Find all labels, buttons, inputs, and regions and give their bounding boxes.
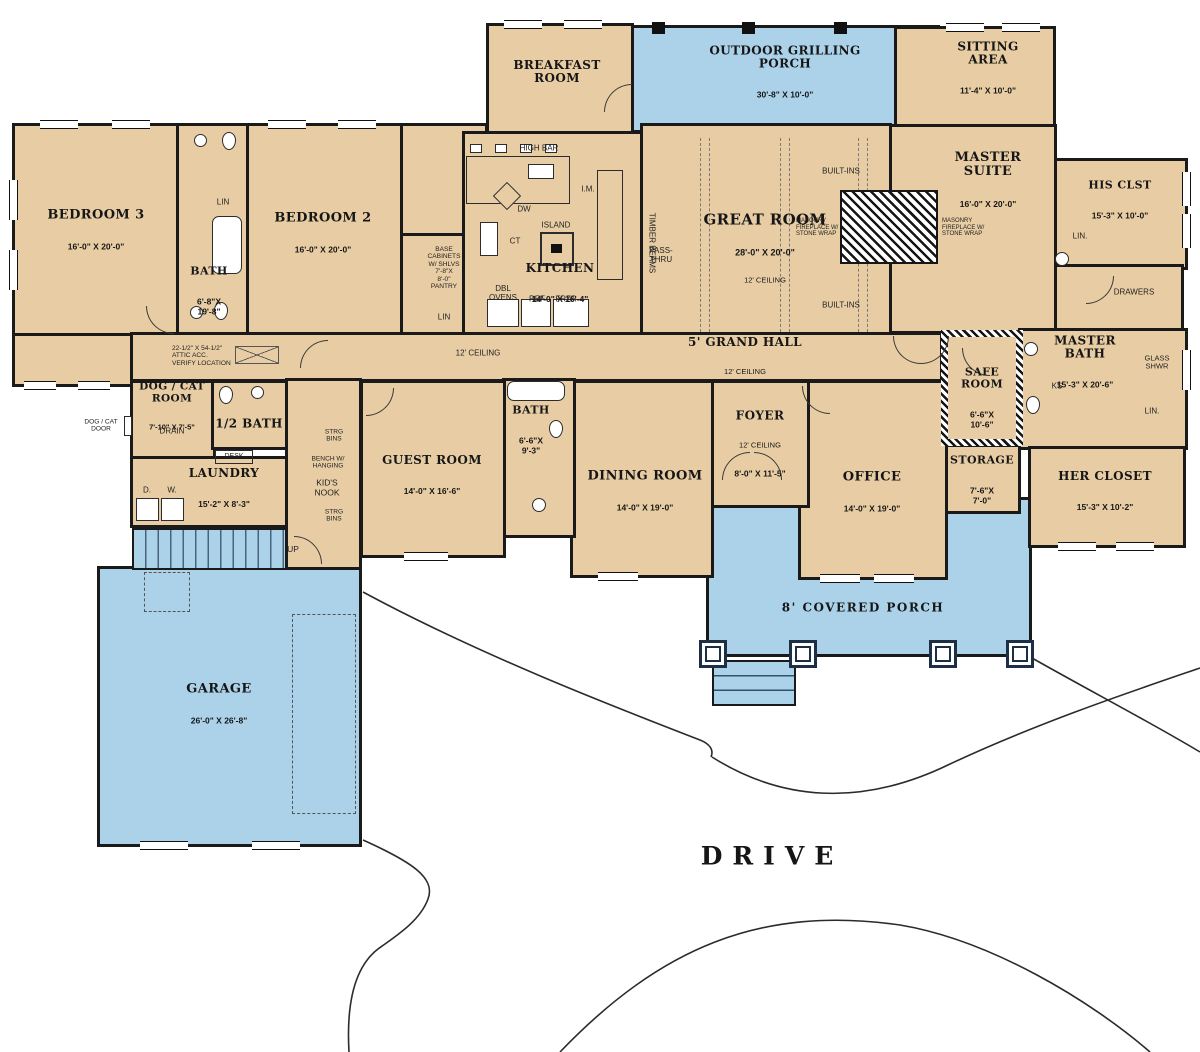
window bbox=[564, 20, 602, 29]
room-name: GUEST ROOM bbox=[382, 454, 482, 467]
dog-cat-room-label: DOG / CAT ROOM 7'-10" X 7'-5" bbox=[139, 364, 205, 451]
drain-note: DRAIN bbox=[160, 428, 185, 437]
dryer-icon bbox=[161, 498, 184, 521]
room-name: SAFE ROOM bbox=[961, 366, 1003, 390]
room-name: DINING ROOM bbox=[587, 469, 702, 483]
dining-room-label: DINING ROOM 14'-0" X 19'-0" bbox=[587, 451, 702, 530]
room-name: GARAGE bbox=[186, 682, 252, 696]
room-name: BATH bbox=[190, 265, 227, 277]
dogcat-door-note: DOG / CAT DOOR bbox=[84, 419, 117, 434]
island-note: ISLAND bbox=[542, 222, 571, 231]
porch-column-icon bbox=[929, 640, 957, 668]
grilling-porch-label: OUTDOOR GRILLING PORCH 30'-8" X 10'-0" bbox=[709, 26, 860, 117]
built-ins-note: BUILT-INS bbox=[822, 168, 860, 177]
window bbox=[24, 381, 56, 390]
washer-icon bbox=[136, 498, 159, 521]
window bbox=[404, 552, 448, 561]
fireplace-icon bbox=[840, 190, 938, 264]
up-note: UP bbox=[287, 545, 299, 555]
window bbox=[1182, 214, 1191, 248]
room-name: OUTDOOR GRILLING PORCH bbox=[709, 44, 860, 70]
room-dims: 15'-3" X 20'-6" bbox=[1054, 380, 1116, 390]
room-name: BEDROOM 2 bbox=[274, 211, 371, 225]
room-dims: 15'-3" X 10'-0" bbox=[1088, 211, 1151, 221]
window bbox=[112, 120, 150, 129]
room-dims: 6'-6"X 10'-6" bbox=[961, 410, 1003, 430]
storage-label: STORAGE 7'-6"X 7'-0" bbox=[950, 436, 1014, 523]
masonry-fireplace-note: MASONRY FIREPLACE W/ STONE WRAP bbox=[942, 218, 984, 238]
dogcat-door-icon bbox=[124, 416, 132, 436]
bath-3-label: BATH 6'-8"X 19'-8" bbox=[190, 247, 227, 334]
window bbox=[252, 841, 300, 850]
drive-label: DRIVE bbox=[701, 824, 844, 888]
sink-icon bbox=[251, 386, 264, 399]
attic-note: 22-1/2" X 54-1/2" ATTIC ACC. VERIFY LOCA… bbox=[172, 345, 231, 367]
ice-maker-note: I.M. bbox=[581, 186, 594, 195]
timber-beams-note: TIMBER BEAMS bbox=[647, 213, 656, 273]
cooktop-icon bbox=[480, 222, 498, 256]
room-name: BEDROOM 3 bbox=[47, 208, 144, 222]
ice-maker-cabinet bbox=[597, 170, 623, 280]
room-dims: 14'-0" X 19'-0" bbox=[843, 504, 902, 514]
strg-bins-note: STRG BINS bbox=[325, 509, 343, 524]
room-note: 12' CEILING bbox=[703, 276, 826, 284]
room-dims: 11'-4" X 10'-0" bbox=[957, 86, 1018, 96]
room-name: BATH bbox=[512, 404, 549, 416]
room-name: MASTER BATH bbox=[1054, 334, 1116, 360]
sink-icon bbox=[194, 134, 207, 147]
breakfast-label: BREAKFAST ROOM bbox=[513, 41, 600, 103]
ks-note: KS bbox=[1052, 383, 1063, 392]
lin-note: LIN. bbox=[1073, 233, 1088, 242]
lin-note: LIN bbox=[217, 199, 229, 208]
bedroom-3-label: BEDROOM 3 16'-0" X 20'-0" bbox=[47, 190, 144, 269]
room-name: 1/2 BATH bbox=[215, 417, 283, 430]
master-suite-label: MASTER SUITE 16'-0" X 20'-0" bbox=[955, 133, 1022, 227]
window bbox=[1116, 542, 1154, 551]
double-ovens-icon bbox=[487, 299, 519, 327]
room-dims: 16'-0" X 20'-0" bbox=[274, 245, 371, 255]
room-name: HIS CLST bbox=[1088, 179, 1151, 191]
dw-note: DW bbox=[517, 206, 530, 215]
frzr-note: FRZR bbox=[555, 296, 576, 305]
his-closet-label: HIS CLST 15'-3" X 10'-0" bbox=[1088, 161, 1151, 238]
window bbox=[1182, 172, 1191, 206]
window bbox=[9, 250, 18, 290]
room-dims: 16'-0" X 20'-0" bbox=[47, 242, 144, 252]
room-note: 12' CEILING bbox=[734, 441, 785, 449]
room-name: KITCHEN bbox=[526, 262, 595, 275]
window bbox=[1058, 542, 1096, 551]
room-note: 12' CEILING bbox=[688, 368, 802, 376]
lin-note: LIN. bbox=[1145, 408, 1160, 417]
window bbox=[140, 841, 188, 850]
room-name: DRIVE bbox=[701, 842, 844, 870]
kitchen-label: KITCHEN 14'-0" X 16'-4" bbox=[526, 244, 595, 322]
window bbox=[504, 20, 542, 29]
ref-note: REF bbox=[529, 296, 545, 305]
ct-note: CT bbox=[510, 238, 521, 247]
window bbox=[40, 120, 78, 129]
sink-icon bbox=[532, 498, 546, 512]
her-closet-label: HER CLOSET 15'-3" X 10'-2" bbox=[1058, 452, 1152, 530]
room-dims: 8'-0" X 11'-5" bbox=[734, 469, 785, 479]
room-name: LAUNDRY bbox=[189, 467, 260, 480]
window bbox=[598, 572, 638, 581]
storage-shelves bbox=[144, 572, 190, 612]
kitchen-sink-icon bbox=[528, 164, 554, 179]
sitting-area-label: SITTING AREA 11'-4" X 10'-0" bbox=[957, 22, 1018, 113]
safe-room-label: SAFE ROOM 6'-6"X 10'-6" bbox=[961, 348, 1003, 447]
porch-column-icon bbox=[789, 640, 817, 668]
bar-stool-icon bbox=[495, 144, 507, 153]
foyer-label: FOYER 12' CEILING 8'-0" X 11'-5" bbox=[734, 391, 785, 496]
desk-note: DESK bbox=[224, 453, 243, 461]
room-dims: 16'-0" X 20'-0" bbox=[955, 199, 1022, 209]
room-name: SITTING AREA bbox=[957, 40, 1018, 66]
room-name: 8' COVERED PORCH bbox=[782, 601, 945, 614]
room-dims: 15'-3" X 10'-2" bbox=[1058, 502, 1152, 512]
dbl-ovens-note: DBL OVENS bbox=[489, 285, 517, 303]
strg-bins-note: STRG BINS bbox=[325, 429, 343, 444]
room-dims: 14'-0" X 16'-6" bbox=[382, 486, 482, 496]
half-bath-label: 1/2 BATH bbox=[215, 399, 283, 448]
drive-curve-bottom bbox=[560, 920, 1150, 1052]
room-name: HER CLOSET bbox=[1058, 470, 1152, 483]
attic-stair-icon bbox=[235, 346, 279, 364]
window bbox=[78, 381, 110, 390]
drive-curve-left-lower bbox=[348, 840, 429, 1052]
drive-curve-porch-right bbox=[1032, 658, 1200, 752]
bar-stool-icon bbox=[470, 144, 482, 153]
room-name: 5' GRAND HALL bbox=[688, 336, 802, 349]
lin-note: LIN bbox=[438, 314, 450, 323]
glass-shower-note: GLASS SHWR bbox=[1144, 355, 1169, 372]
room-name: FOYER bbox=[734, 409, 785, 422]
kids-nook-note: KID'S NOOK bbox=[314, 478, 339, 497]
window bbox=[338, 120, 376, 129]
room-name: OFFICE bbox=[843, 470, 902, 484]
room-dims: 6'-8"X 19'-8" bbox=[190, 297, 227, 317]
room-dims: 7'-6"X 7'-0" bbox=[950, 486, 1014, 506]
garage-door-outline bbox=[292, 614, 356, 814]
covered-porch-label: 8' COVERED PORCH bbox=[782, 583, 945, 632]
room-name: STORAGE bbox=[950, 454, 1014, 466]
room-dims: 15'-2" X 8'-3" bbox=[189, 499, 260, 509]
room-name: MASTER SUITE bbox=[955, 151, 1022, 180]
room-name: BREAKFAST ROOM bbox=[513, 59, 600, 85]
room-name: DOG / CAT ROOM bbox=[139, 382, 205, 405]
dryer-note: D. bbox=[143, 487, 151, 496]
window bbox=[874, 574, 914, 583]
room-dims: 14'-0" X 19'-0" bbox=[587, 503, 702, 513]
bench-note: BENCH W/ HANGING bbox=[312, 456, 345, 471]
high-bar-note: HIGH BAR bbox=[520, 145, 559, 154]
master-bath-label: MASTER BATH 15'-3" X 20'-6" bbox=[1054, 316, 1116, 407]
guest-room-label: GUEST ROOM 14'-0" X 16'-6" bbox=[382, 436, 482, 514]
porch-post-icon bbox=[652, 22, 665, 34]
great-room-label: GREAT ROOM 28'-0" X 20'-0" 12' CEILING bbox=[703, 193, 826, 302]
bedroom-2-label: BEDROOM 2 16'-0" X 20'-0" bbox=[274, 193, 371, 272]
window bbox=[268, 120, 306, 129]
built-ins-note: BUILT-INS bbox=[822, 302, 860, 311]
masonry-fireplace-note: MASONRY FIREPLACE W/ STONE WRAP bbox=[796, 218, 838, 238]
window bbox=[9, 180, 18, 220]
office-label: OFFICE 14'-0" X 19'-0" bbox=[843, 452, 902, 531]
washer-note: W. bbox=[167, 487, 176, 496]
porch-column-icon bbox=[1006, 640, 1034, 668]
sink-icon bbox=[1055, 252, 1069, 266]
floor-plan: BEDROOM 3 16'-0" X 20'-0" BATH 6'-8"X 19… bbox=[0, 0, 1200, 1052]
grand-hall-label: 5' GRAND HALL 12' CEILING bbox=[688, 318, 802, 394]
garage-label: GARAGE 26'-0" X 26'-8" bbox=[186, 664, 252, 743]
window bbox=[820, 574, 860, 583]
ceiling-note: 12' CEILING bbox=[456, 350, 501, 359]
guest-bath-label: BATH 6'-6"X 9'-3" bbox=[512, 386, 549, 473]
bedroom-3-bay bbox=[12, 333, 136, 387]
pantry-note: BASE CABINETS W/ SHLVS 7'-8"X 8'-0" PANT… bbox=[428, 246, 461, 290]
porch-column-icon bbox=[699, 640, 727, 668]
window bbox=[1182, 350, 1191, 390]
drawers-note: DRAWERS bbox=[1114, 289, 1155, 298]
sink-icon bbox=[1024, 342, 1038, 356]
drive-curve-left-upper bbox=[363, 592, 712, 757]
room-dims: 26'-0" X 26'-8" bbox=[186, 716, 252, 726]
room-dims: 6'-6"X 9'-3" bbox=[512, 436, 549, 456]
room-dims: 30'-8" X 10'-0" bbox=[709, 90, 860, 100]
room-dims: 28'-0" X 20'-0" bbox=[703, 247, 826, 258]
